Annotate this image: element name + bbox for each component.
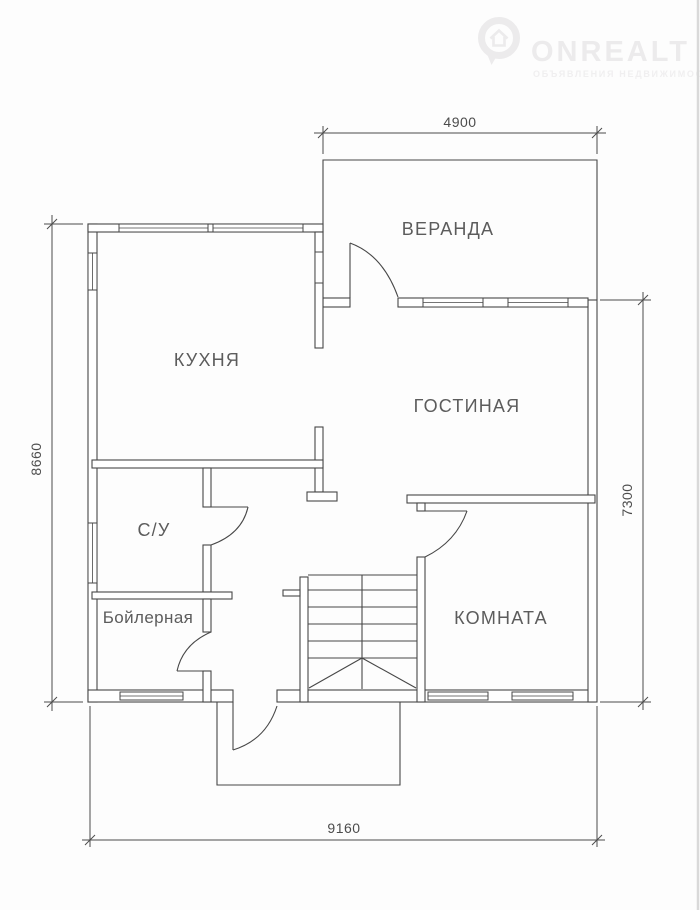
dimension-right-value: 7300 (619, 483, 635, 516)
wall-boiler-right-upper (203, 599, 211, 632)
door-entrance (233, 702, 277, 750)
wall-bedroom-left (417, 557, 425, 702)
wall-boiler-top (92, 592, 232, 599)
room-label-kitchen: КУХНЯ (174, 350, 240, 370)
stairs-direction-line-a (309, 658, 362, 688)
wall-stairs-left (300, 577, 308, 702)
room-label-veranda: ВЕРАНДА (402, 219, 494, 239)
dimension-right: 7300 (600, 292, 651, 710)
floor-plan-svg: ONREALT ОБЪЯВЛЕНИЯ НЕДВИЖИМОСТИ (0, 0, 700, 910)
map-pin-house-icon (482, 21, 517, 66)
dimension-top-value: 4900 (443, 114, 476, 130)
door-boiler (177, 632, 211, 671)
door-veranda (350, 243, 398, 298)
wall-stub (283, 590, 300, 596)
wall-hall-foot (307, 492, 337, 501)
stairs-direction-line-b (362, 658, 416, 688)
dimension-left-value: 8660 (28, 442, 44, 475)
wall-kitchen-right (315, 232, 323, 348)
brand-text: ONREALT (531, 36, 690, 68)
watermark-logo: ONREALT ОБЪЯВЛЕНИЯ НЕДВИЖИМОСТИ (482, 21, 700, 80)
brand-tagline: ОБЪЯВЛЕНИЯ НЕДВИЖИМОСТИ (533, 69, 700, 79)
wall-bathroom-right-lower (203, 545, 211, 592)
window-kitchen-veranda (315, 252, 323, 283)
wall-bedroom-top (407, 495, 595, 503)
entrance-porch (217, 702, 400, 785)
wall-bathroom-top (92, 460, 323, 468)
room-label-bedroom: КОМНАТА (454, 608, 548, 628)
wall-bathroom-right-upper (203, 468, 211, 507)
floor-plan-photo: ONREALT ОБЪЯВЛЕНИЯ НЕДВИЖИМОСТИ (0, 0, 700, 910)
room-label-bathroom: С/У (137, 520, 170, 540)
room-labels: ВЕРАНДА КУХНЯ ГОСТИНАЯ С/У Бойлерная КОМ… (103, 219, 548, 628)
dimension-bottom: 9160 (82, 706, 605, 847)
wall-bedroom-door-stub (417, 503, 425, 511)
house-glyph (491, 31, 508, 46)
wall-living-top-a (323, 298, 350, 307)
wall-boiler-right-lower (203, 671, 211, 702)
dimension-bottom-value: 9160 (327, 820, 360, 836)
door-bathroom (211, 507, 248, 545)
room-label-living: ГОСТИНАЯ (414, 396, 521, 416)
room-label-boiler: Бойлерная (103, 608, 194, 627)
dimension-left: 8660 (28, 215, 83, 711)
dimension-top: 4900 (314, 114, 606, 154)
stairs (308, 575, 417, 689)
door-bedroom (425, 511, 467, 557)
